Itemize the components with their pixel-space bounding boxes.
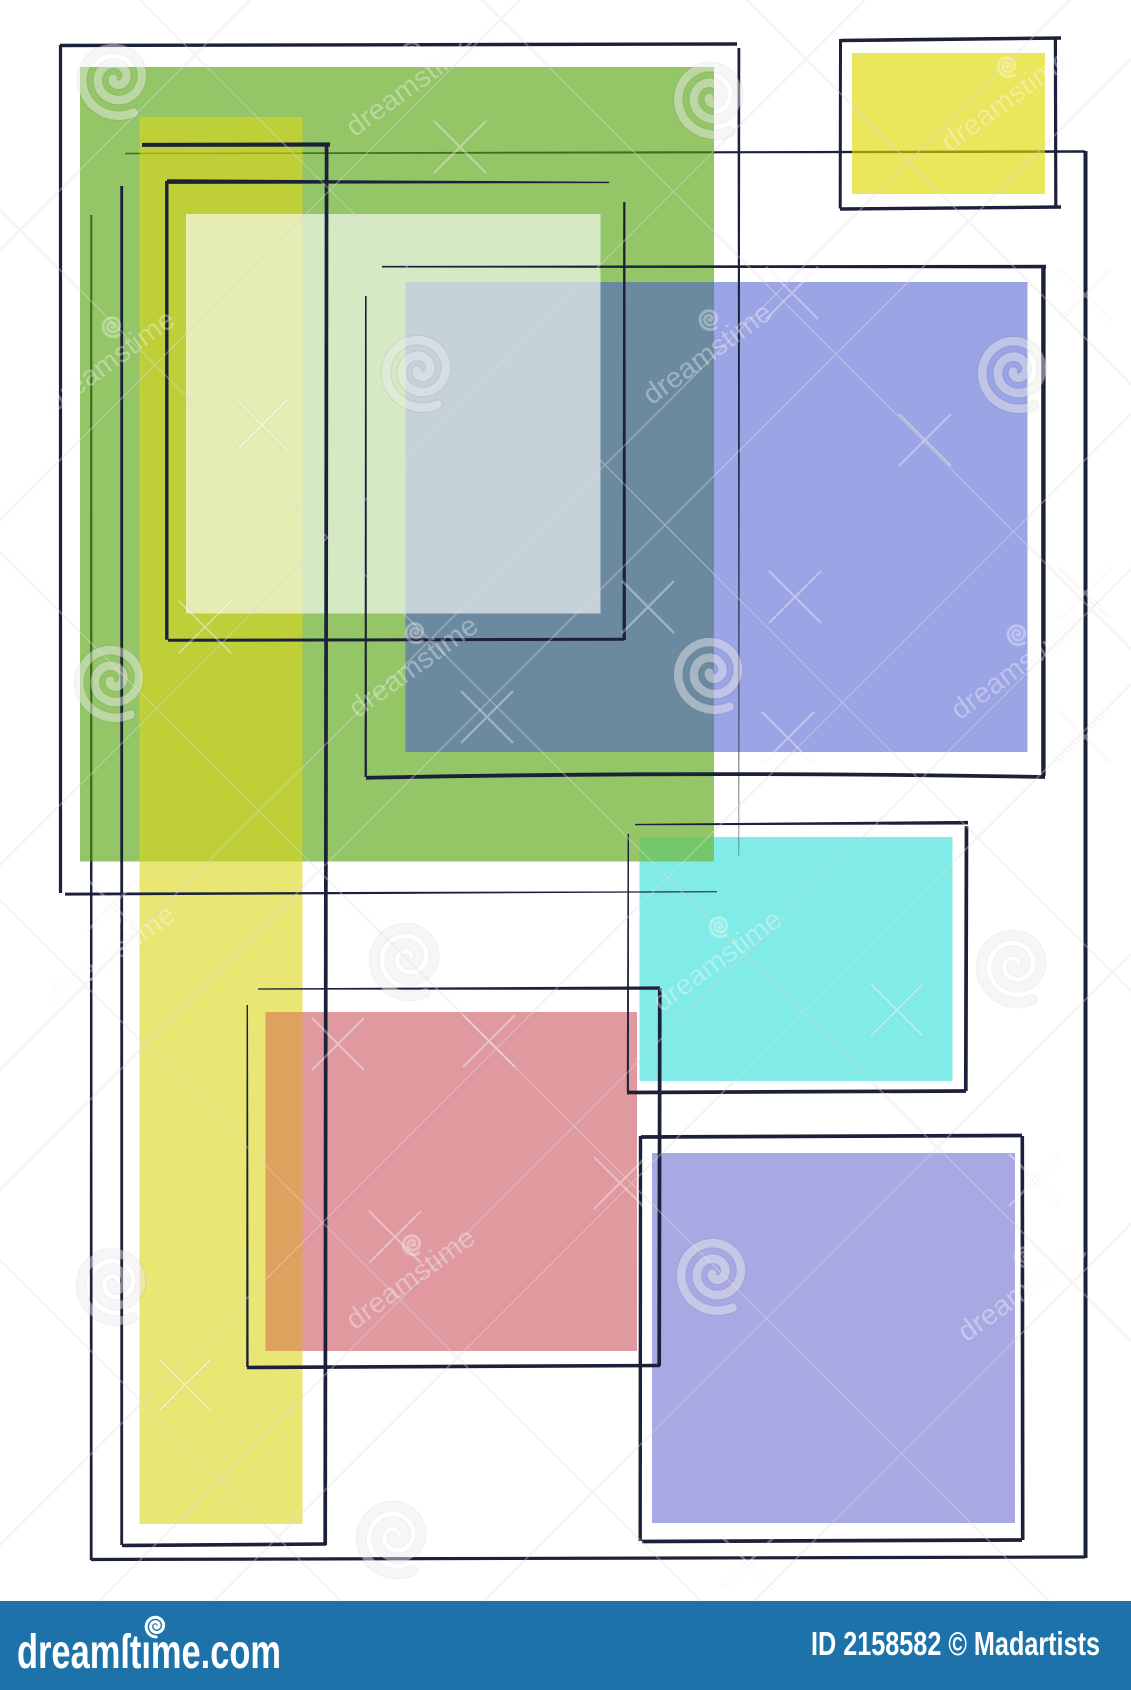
svg-text:ID 2158582 © Madartists: ID 2158582 © Madartists xyxy=(811,1625,1100,1662)
